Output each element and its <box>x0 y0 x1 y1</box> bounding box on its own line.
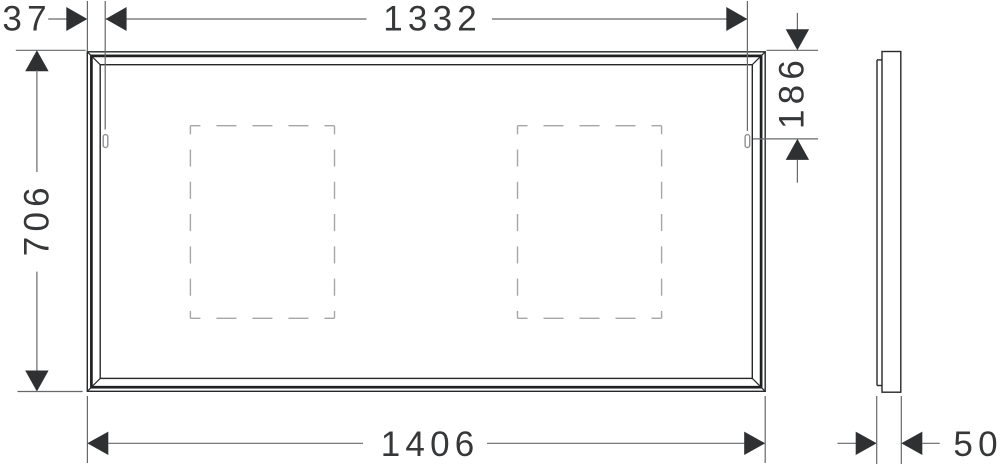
svg-text:1406: 1406 <box>381 425 480 464</box>
svg-text:1332: 1332 <box>383 0 482 39</box>
svg-text:706: 706 <box>17 182 56 256</box>
svg-text:37: 37 <box>2 0 51 39</box>
svg-text:186: 186 <box>773 55 812 129</box>
svg-text:50: 50 <box>953 425 1000 464</box>
